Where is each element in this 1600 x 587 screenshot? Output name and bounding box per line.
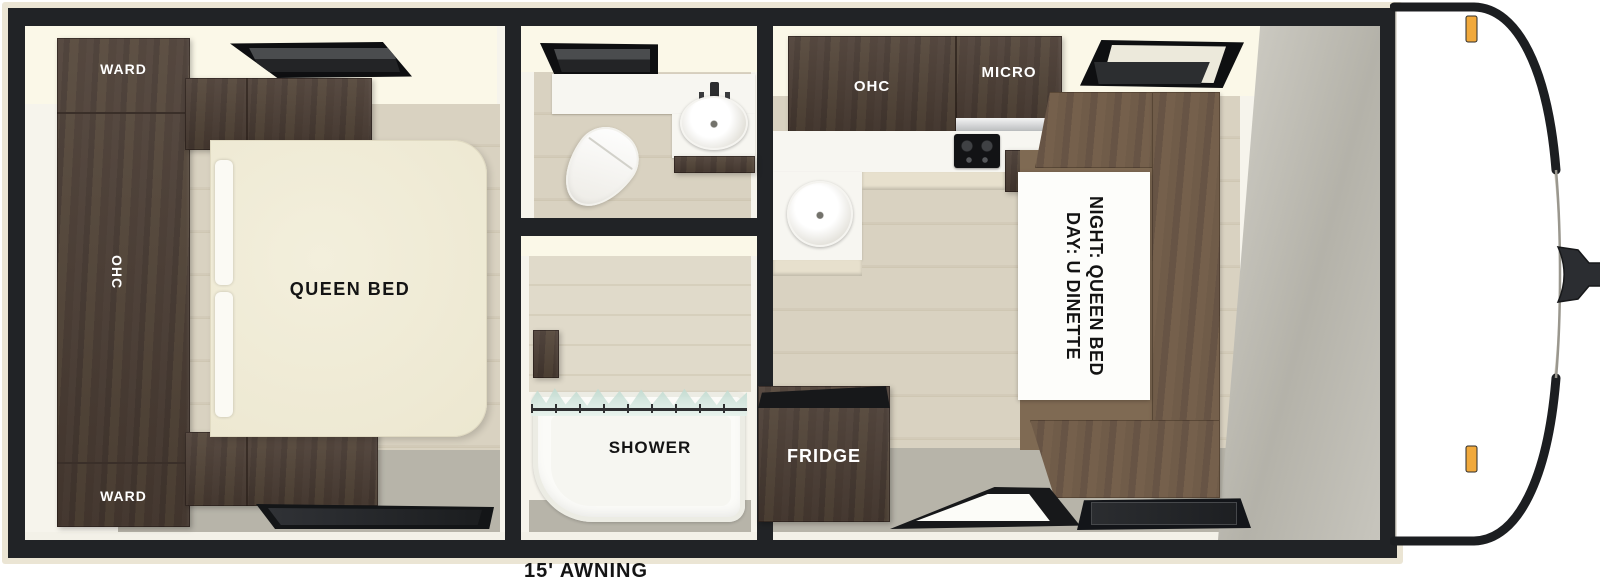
nose-body [1396,6,1560,542]
shower-curtain-rod [531,408,747,411]
marker-light-top [1466,16,1477,42]
dinette-label-day: DAY: U DINETTE [1062,212,1083,360]
marker-light-bottom [1466,446,1477,472]
kitchen-sink [787,181,853,247]
fridge-top [758,386,890,408]
roof-vent-bathroom [540,43,658,78]
ward-top-label: WARD [57,61,190,77]
dinette-backrest-bottom [1030,420,1220,498]
fridge-label: FRIDGE [758,446,890,467]
awning-label: 15' AWNING [486,560,686,583]
shower-side-cabinet [533,330,559,378]
kitchen-counter-face [862,172,1005,190]
kitchen-ohc-label: OHC [812,78,932,95]
wall-bedroom-bathroom [505,26,521,540]
hitch-coupler [1558,247,1600,302]
roof-vent-bathroom-lid [554,49,650,72]
ward-bottom-label: WARD [57,488,190,504]
queen-bed-label: QUEEN BED [240,279,460,300]
trailer-nose [1390,0,1600,587]
kitchen-sink-counter-face [773,260,862,276]
kitchen-micro-label: MICRO [956,64,1062,81]
toilet-seat-line [588,137,633,170]
bathroom-sink-cabinet [674,156,755,173]
cooktop [954,134,1000,168]
bedroom-window [256,504,494,529]
bed-pillow-right [215,292,233,417]
roof-skylight-dinette [1080,40,1244,88]
bedroom-window-pane [268,508,482,525]
shower-ceiling [521,236,757,256]
roof-vent-bedroom-lid [246,48,400,72]
headboard-cabinet-bottom [185,432,378,506]
shower-wall-panel [529,256,751,392]
ohc-wardrobe-label: OHC [107,242,127,302]
bed-pillow-left [215,160,233,285]
floorplan-canvas: WARD OHC WARD QUEEN BED SHOWER [0,0,1600,587]
main-window-pane [1091,502,1237,525]
fridge: FRIDGE [758,386,890,522]
shower-label: SHOWER [570,438,730,458]
wall-bathroom-shower [505,218,773,236]
dinette-label-night: NIGHT: QUEEN BED [1085,196,1106,376]
dinette-label: NIGHT: QUEEN BED DAY: U DINETTE [1018,172,1150,400]
main-window [1077,497,1251,530]
bathroom-sink [680,96,748,150]
interior-baseboard [25,532,1380,540]
skylight-lid [1094,62,1210,85]
shower-tub-base [551,416,731,506]
